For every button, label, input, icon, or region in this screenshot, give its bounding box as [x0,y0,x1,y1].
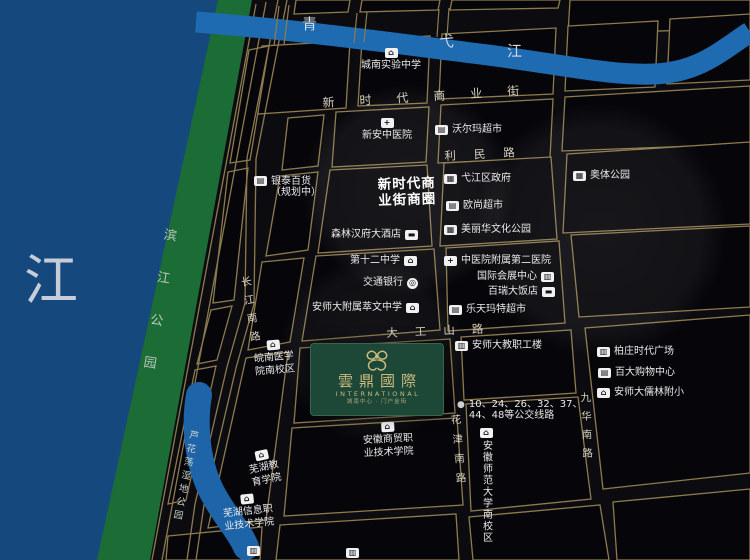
poi-label: 城南实验中学 [361,60,421,71]
poi-label: 国际会展中心 [477,271,537,283]
cloud-ornament-icon [359,347,395,373]
project-name-en: INTERNATIONAL [336,390,421,398]
poi-bus-lines: ● 10、24、26、32、37、 44、48等公交线路 [457,399,582,421]
store-icon: ▤ [449,305,462,315]
hotel-icon: ▬ [542,287,555,297]
poi-baizhuang-plaza: ▥ 柏庄时代广场 [597,346,674,358]
poi-xinan-hospital: + 新安中医院 [354,118,420,141]
poi-label: 森林汉府大酒店 [331,229,401,241]
poi-label: 沃尔玛超市 [452,124,502,136]
project-logo-card: 雲鼎國際 INTERNATIONAL 城南中心 · 门户金街 [310,343,444,416]
business-circle-label: 新时代商 业街商圈 [377,175,436,209]
poi-label: 乐天玛特超市 [466,304,526,316]
top-river-char: 江 [507,40,522,61]
store-icon: ▤ [435,125,448,135]
poi-wannan-medical-college: ⌂ 皖南医学 院南校区 [245,338,304,379]
poi-lotte-mart: ▤ 乐天玛特超市 [449,304,526,316]
poi-label: 交通银行 [363,277,403,289]
poi-cuiwen-middle-school: 安师大附属萃文中学 ⌂ [312,302,419,314]
poi-label: 安师大附属萃文中学 [312,302,402,314]
poi-label: 新安中医院 [362,130,412,141]
building-icon: ▥ [455,341,468,351]
poi-label-line1: 银泰百货 [271,176,321,187]
poi-label: 安师大教职工楼 [472,340,542,352]
building-icon: ▥ [346,548,359,558]
poi-label: 弋江区政府 [461,173,511,185]
school-icon: ⌂ [406,303,419,313]
poi-anhui-business-college: ⌂ 安徽商贸职 业技术学院 [349,420,427,460]
store-icon: ▤ [254,176,267,186]
project-name: 雲鼎國際 [338,373,422,390]
poi-label-line2: （规划中） [271,187,321,198]
poi-tcm-second-hospital: + 中医院附属第二医院 [444,255,551,267]
park-icon: ▦ [573,171,586,181]
building-icon: ▥ [247,546,260,556]
poi-walmart: ▤ 沃尔玛超市 [435,124,502,136]
poi-no12-middle-school: 第十二中学 ⌂ [350,255,417,267]
poi-label-line1: 安徽商贸职 [363,433,414,447]
poi-anhui-normal-university: ⌂ 安徽师范大学南校区 [473,428,499,544]
bus-stop-icon: ● [457,399,465,411]
poi-label-line1: 皖南医学 [254,350,295,364]
poi-convention-center: 国际会展中心 ▥ [477,271,554,283]
poi-yintai-department-store: ▤ 银泰百货 （规划中） [254,176,321,198]
poi-meilihua-culture-park: ▦ 美丽华文化公园 [444,224,531,236]
school-icon: ⌂ [254,449,269,461]
hospital-icon: + [444,256,457,266]
top-river-char: 青 [302,13,317,34]
bus-lines-line2: 44、48等公交线路 [469,410,583,421]
building-icon: ▥ [541,272,554,282]
poi-auchan-supermarket: ▤ 欧尚超市 [446,200,503,212]
poi-yijiang-district-government: ▦ 弋江区政府 [444,173,511,185]
poi-baida-mall: ▤ 百大购物中心 [598,367,675,379]
government-icon: ▦ [444,174,457,184]
bus-lines-line1: 10、24、26、32、37、 [469,399,583,410]
project-tagline: 城南中心 · 门户金街 [347,398,407,406]
poi-label: 美丽华文化公园 [461,224,531,236]
poi-bairui-hotel: 百瑞大饭店 ▬ [488,286,555,298]
poi-label: 百瑞大饭店 [488,286,538,298]
park-icon: ▦ [444,225,457,235]
poi-label: 奥体公园 [590,170,630,182]
poi-label: 百大购物中心 [615,367,675,379]
poi-label: 欧尚超市 [463,200,503,212]
hotel-icon: ▬ [405,230,418,240]
poi-chengnan-middle-school: ⌂ 城南实验中学 [347,48,435,71]
school-icon: ⌂ [240,493,254,504]
poi-label: 安徽师范大学南校区 [481,440,492,544]
poi-label: 中医院附属第二医院 [461,255,551,267]
building-icon: ▥ [597,347,610,357]
bank-icon: ◎ [407,278,418,289]
store-icon: ▤ [446,201,459,211]
store-icon: ▤ [598,368,611,378]
business-circle-line2: 业街商圈 [378,191,437,209]
school-icon: ⌂ [404,256,417,266]
poi-wuhu-info-tech-college: ⌂ 芜湖信息职 业技术学院 [210,490,285,533]
school-icon: ⌂ [480,428,493,438]
poi-label: 第十二中学 [350,255,400,267]
poi-rulin-primary-school: ⌂ 安师大儒林附小 [597,387,684,399]
poi-bank-of-communications: 交通银行 ◎ [363,277,418,289]
poi-aoti-park: ▦ 奥体公园 [573,170,630,182]
left-river-label: 江 [24,236,80,315]
school-icon: ⌂ [381,422,395,433]
poi-label: 柏庄时代广场 [614,346,674,358]
poi-senlin-hotel: 森林汉府大酒店 ▬ [331,229,418,241]
school-icon: ⌂ [266,340,280,351]
school-icon: ⌂ [385,48,398,58]
location-map: 江 青 弋 江 滨江公园 芦花荡湿地公园 新时代商业街 利民路 大工山路 长江南… [0,0,750,560]
hospital-icon: + [381,118,394,128]
top-river-char: 弋 [439,30,454,51]
poi-label: 安师大儒林附小 [614,387,684,399]
poi-normal-univ-staff-building: ▥ 安师大教职工楼 [455,340,542,352]
school-icon: ⌂ [597,388,610,398]
